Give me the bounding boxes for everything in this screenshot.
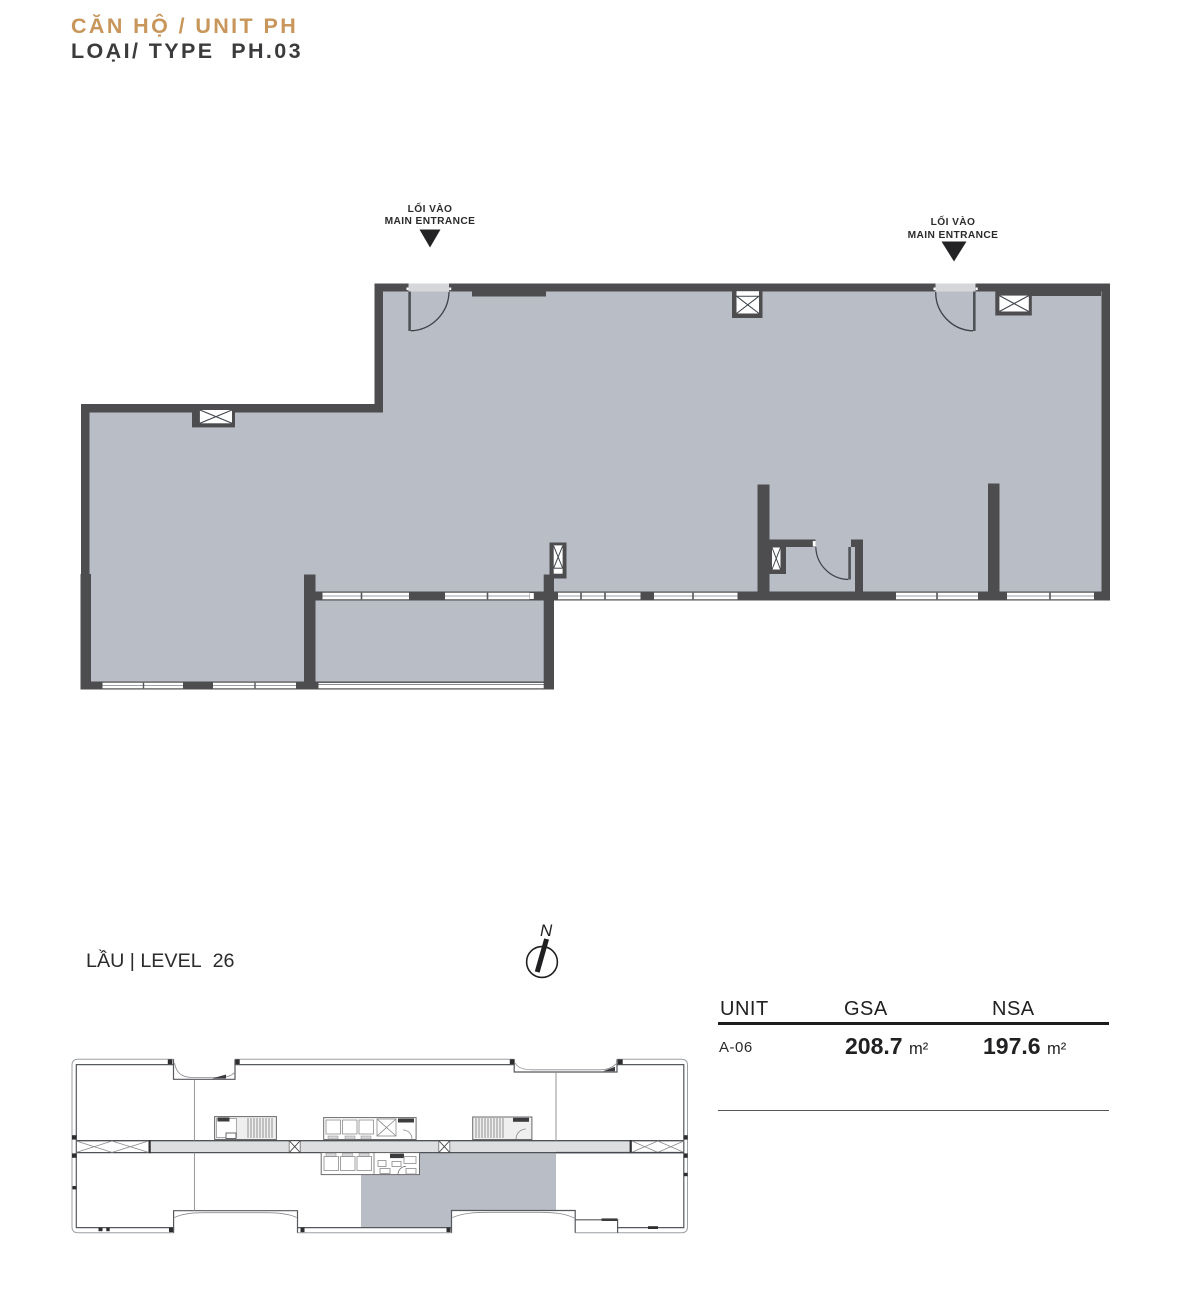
svg-text:N: N	[540, 921, 553, 940]
